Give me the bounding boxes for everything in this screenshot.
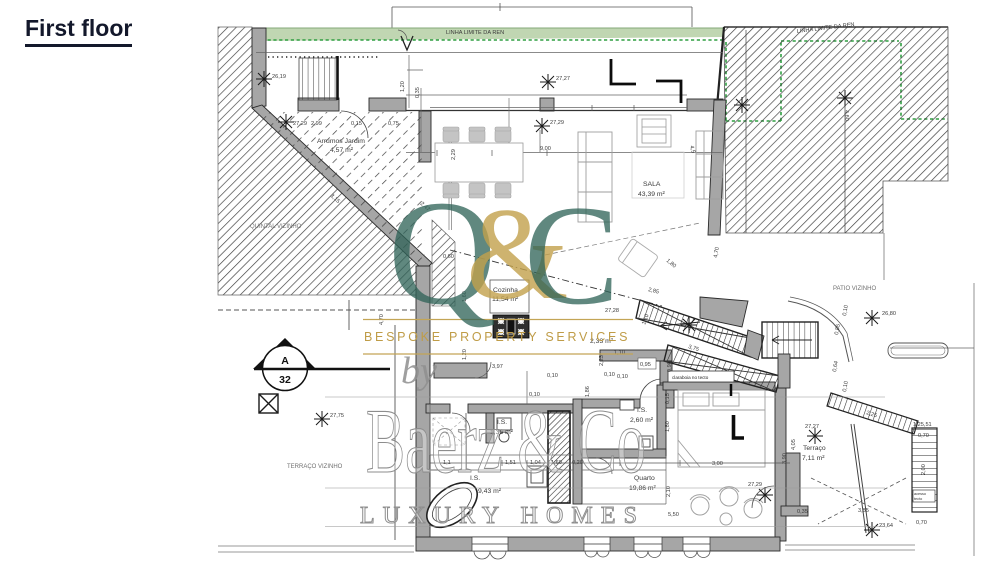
svg-text:Baerz & Co: Baerz & Co	[366, 390, 646, 492]
svg-text:9,00: 9,00	[540, 146, 551, 152]
svg-text:26,80: 26,80	[882, 311, 896, 317]
svg-text:27,29: 27,29	[293, 121, 307, 127]
svg-text:Terraço: Terraço	[803, 445, 826, 452]
svg-text:0,70: 0,70	[916, 520, 927, 526]
svg-text:SALA: SALA	[643, 181, 661, 188]
svg-text:2,85: 2,85	[648, 287, 660, 295]
svg-text:0,10: 0,10	[842, 381, 850, 393]
svg-text:3,85: 3,85	[858, 508, 869, 514]
svg-text:2,00: 2,00	[921, 464, 927, 475]
svg-text:0,10: 0,10	[604, 372, 615, 378]
svg-text:acesso: acesso	[914, 492, 926, 496]
svg-text:27,27: 27,27	[805, 424, 819, 430]
svg-text:43,39 m²: 43,39 m²	[638, 191, 666, 198]
svg-text:27,75: 27,75	[330, 413, 344, 419]
svg-text:TERRAÇO VIZINHO: TERRAÇO VIZINHO	[287, 464, 343, 470]
svg-text:2,23: 2,23	[599, 355, 605, 366]
svg-text:32: 32	[279, 374, 291, 386]
svg-text:0,15: 0,15	[665, 393, 671, 404]
svg-text:1,80: 1,80	[665, 258, 677, 270]
svg-text:1,20: 1,20	[400, 81, 406, 92]
svg-text:claraboia no tecto: claraboia no tecto	[672, 375, 709, 380]
svg-text:23,64: 23,64	[879, 523, 893, 529]
svg-text:4,70: 4,70	[713, 247, 721, 259]
svg-text:2,29: 2,29	[451, 149, 457, 160]
svg-text:7,11 m²: 7,11 m²	[802, 455, 825, 462]
svg-text:0,64: 0,64	[832, 361, 840, 373]
svg-text:LUXURY HOMES: LUXURY HOMES	[360, 503, 646, 529]
svg-text:QUINTAL VIZINHO: QUINTAL VIZINHO	[250, 224, 302, 230]
svg-text:27,27: 27,27	[556, 76, 570, 82]
svg-text:C: C	[524, 176, 619, 334]
svg-text:by: by	[401, 350, 437, 392]
svg-text:2,99: 2,99	[311, 121, 322, 127]
svg-text:3,00: 3,00	[712, 461, 723, 467]
svg-text:0,70: 0,70	[918, 433, 929, 439]
svg-text:0,35: 0,35	[797, 509, 808, 515]
svg-text:1,80: 1,80	[665, 421, 671, 432]
svg-text:Arrumos Jardim: Arrumos Jardim	[317, 138, 365, 145]
svg-text:4,57 m²: 4,57 m²	[330, 147, 354, 154]
svg-text:0,10: 0,10	[617, 374, 628, 380]
svg-text:1,25,51: 1,25,51	[913, 422, 932, 428]
svg-text:4,60: 4,60	[843, 110, 849, 121]
svg-text:0,85: 0,85	[834, 324, 842, 336]
svg-text:26,19: 26,19	[272, 74, 286, 80]
svg-text:3,90: 3,90	[782, 453, 788, 464]
svg-text:tecto: tecto	[914, 497, 922, 501]
svg-text:27,29: 27,29	[550, 120, 564, 126]
svg-text:0,15: 0,15	[351, 121, 362, 127]
svg-text:27,29: 27,29	[748, 482, 762, 488]
svg-text:0,95: 0,95	[640, 362, 651, 368]
svg-text:1,10: 1,10	[614, 350, 625, 356]
svg-text:0,90: 0,90	[667, 361, 673, 372]
svg-text:0,10: 0,10	[842, 305, 850, 317]
svg-text:A: A	[281, 355, 289, 367]
svg-text:0,75: 0,75	[388, 121, 399, 127]
svg-text:0,10: 0,10	[547, 373, 558, 379]
svg-text:PATIO VIZINHO: PATIO VIZINHO	[833, 286, 876, 292]
svg-text:LINHA LIMITE DA REN: LINHA LIMITE DA REN	[446, 30, 504, 36]
svg-text:3,97: 3,97	[492, 364, 503, 370]
svg-text:5,50: 5,50	[668, 512, 679, 518]
svg-text:0,35: 0,35	[415, 87, 421, 98]
svg-text:4,05: 4,05	[791, 439, 797, 450]
